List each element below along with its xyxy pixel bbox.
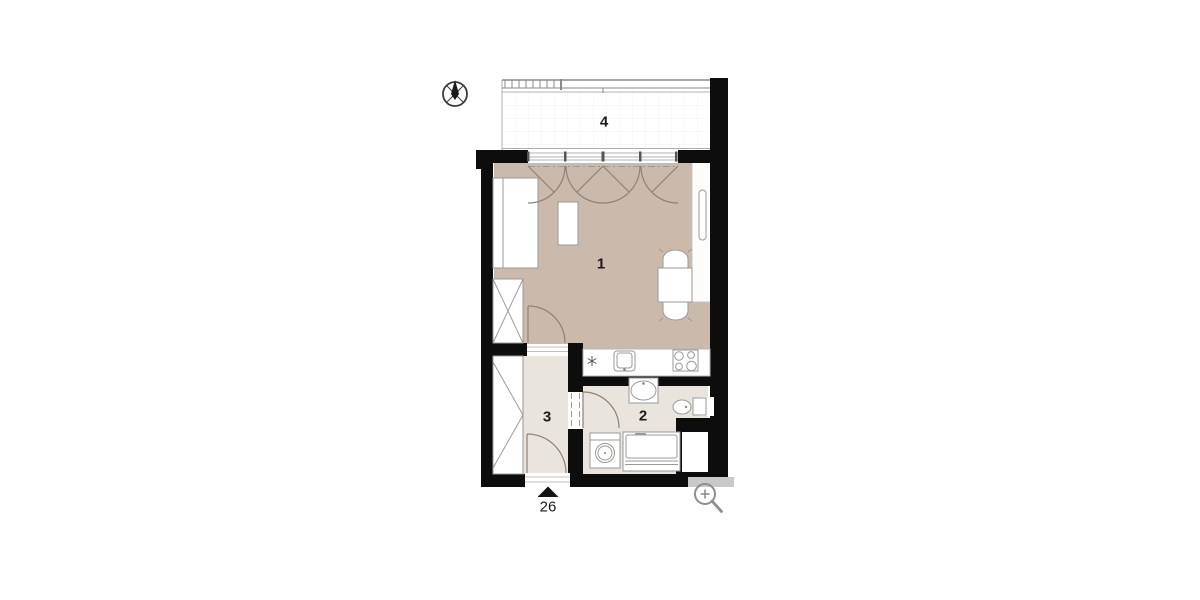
dining-table [658,249,692,321]
doorway-hall-bath [568,392,583,429]
entry-doorway [525,473,570,486]
chair-bottom [663,302,688,320]
room-label-1: 1 [597,256,605,273]
floor-plan-page: 1 2 3 4 26 [0,0,1200,600]
washbasin [629,378,658,403]
bed [493,178,538,268]
wardrobe-room1 [493,279,523,343]
chair-top [663,250,688,268]
entry-number: 26 [540,499,557,516]
floor-plan-canvas [0,0,1200,600]
kitchen-counter [583,349,710,376]
room-label-balcony: 4 [600,114,608,131]
room-label-2: 2 [639,408,647,425]
washing-machine [590,433,620,468]
entry-arrow [538,487,559,498]
side-table [558,202,578,245]
doorway-room1-hall [527,344,568,355]
installation-shaft [682,432,708,472]
wardrobe-hallway [493,356,523,474]
radiator [699,190,706,240]
room-label-3: 3 [543,409,551,426]
zoom-icon[interactable] [695,484,722,512]
compass-icon [443,80,467,106]
bathtub [623,432,680,471]
